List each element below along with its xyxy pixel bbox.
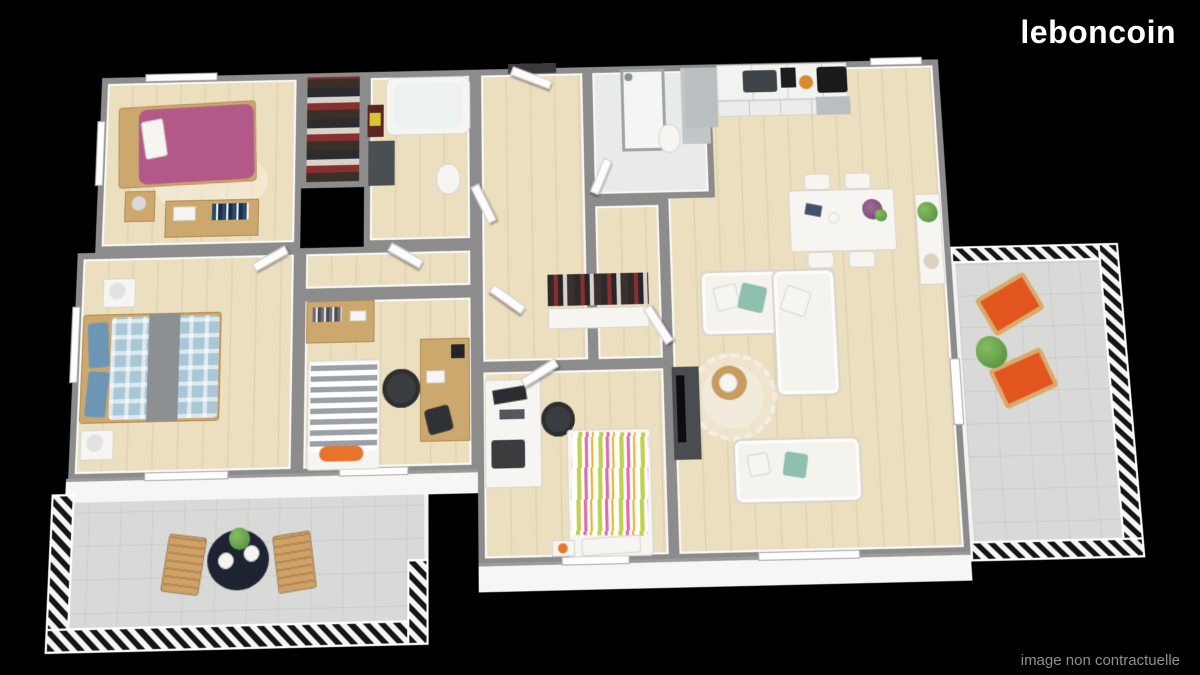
- printer: [491, 440, 525, 469]
- stove: [816, 66, 847, 93]
- south-wall-face-west: [65, 469, 478, 503]
- desk-lamp: [451, 344, 465, 358]
- pillow-orange: [319, 445, 363, 461]
- balcony-door: [949, 358, 964, 425]
- desk-papers: [173, 206, 196, 221]
- wardrobe-rail: [547, 272, 649, 306]
- flower-leaves: [874, 209, 887, 222]
- deck-chair: [974, 271, 1045, 337]
- balcony-railing-south: [970, 537, 1145, 561]
- oven: [816, 96, 851, 115]
- leboncoin-logo: leboncoin: [1020, 16, 1176, 48]
- books-row: [212, 203, 249, 220]
- keyboard: [499, 409, 524, 419]
- towel-yellow: [370, 113, 381, 126]
- desk-items: [350, 310, 367, 321]
- cushion-teal: [783, 451, 809, 478]
- window: [870, 57, 922, 66]
- coffee-machine: [780, 67, 796, 87]
- toilet: [658, 124, 681, 153]
- bed-duvet-gray: [310, 362, 378, 452]
- wooden-chair: [272, 530, 317, 594]
- dining-chair: [803, 173, 830, 190]
- door: [387, 243, 424, 269]
- door: [252, 246, 289, 273]
- office-chair: [382, 369, 420, 409]
- furniture-layer: [30, 50, 1192, 673]
- terrace-railing-south: [45, 620, 429, 654]
- dining-chair: [807, 251, 834, 268]
- vanity-sink: [368, 141, 395, 186]
- south-wall-face-east: [479, 551, 973, 592]
- desk-papers: [426, 370, 445, 383]
- dining-chair: [848, 251, 876, 268]
- books-row: [313, 307, 342, 322]
- plant: [975, 336, 1008, 369]
- kitchen-sink: [742, 70, 777, 93]
- window: [69, 307, 81, 384]
- cushion: [746, 452, 771, 477]
- door: [590, 158, 613, 195]
- toilet: [436, 163, 460, 194]
- pillow-blue: [88, 322, 110, 368]
- wardrobe-doors: [548, 306, 650, 329]
- corner-sofa-chaise: [771, 268, 841, 397]
- floor-plan-3d: [30, 50, 1192, 673]
- wardrobe-shelves: [306, 76, 360, 182]
- disclaimer-text: image non contractuelle: [1021, 652, 1180, 669]
- door: [470, 183, 496, 224]
- cushion-teal: [737, 282, 767, 313]
- bed-duvet-striped: [571, 432, 648, 536]
- door: [489, 284, 526, 315]
- terrace-railing-east: [407, 559, 428, 645]
- window: [145, 73, 217, 83]
- tall-cabinet: [684, 67, 718, 128]
- dining-chair: [844, 172, 871, 189]
- listing-image: leboncoin image non contractuelle: [0, 0, 1200, 675]
- balcony-railing-north: [950, 243, 1105, 263]
- blanket-gray: [146, 314, 181, 422]
- window: [95, 121, 106, 186]
- bathtub-basin: [394, 82, 463, 130]
- wooden-chair: [160, 533, 207, 596]
- balcony-railing-east: [1097, 243, 1145, 558]
